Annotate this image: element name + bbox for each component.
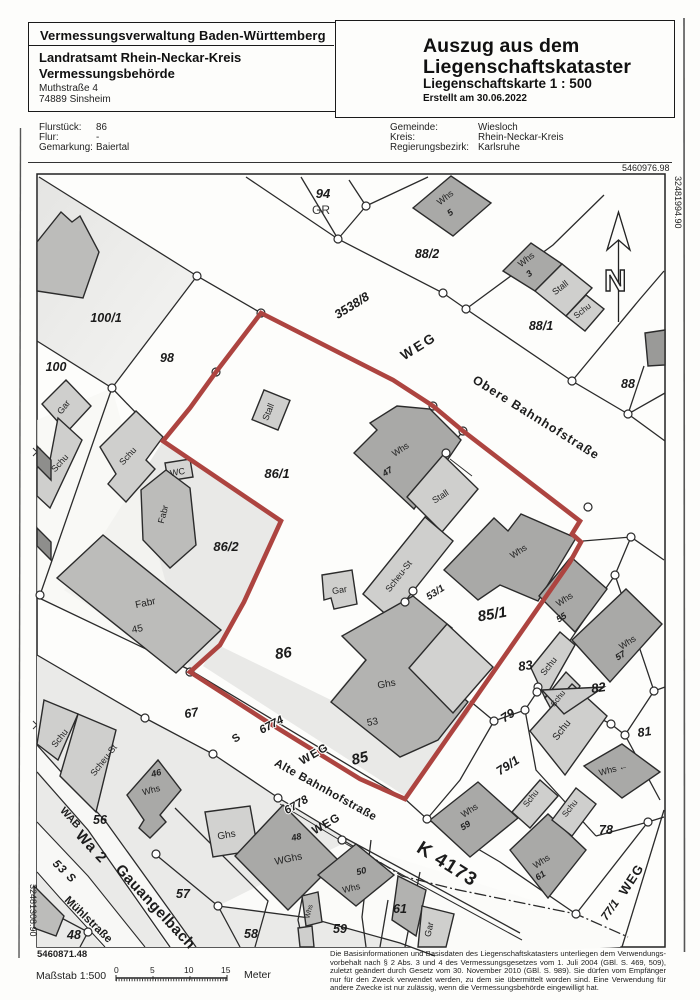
- svg-text:10: 10: [184, 965, 194, 975]
- svg-text:32481994.90: 32481994.90: [673, 176, 683, 229]
- svg-text:59: 59: [333, 922, 347, 936]
- svg-text:S: S: [230, 731, 243, 745]
- svg-text:82: 82: [590, 679, 607, 696]
- svg-text:61: 61: [393, 902, 407, 916]
- svg-text:3538/8: 3538/8: [332, 290, 372, 322]
- svg-text:100/1: 100/1: [90, 311, 121, 325]
- svg-text:32481308.90: 32481308.90: [28, 884, 38, 937]
- svg-text:57: 57: [176, 887, 191, 901]
- svg-text:0: 0: [114, 965, 119, 975]
- svg-text:88/2: 88/2: [415, 247, 439, 261]
- svg-text:86/1: 86/1: [264, 466, 289, 481]
- svg-text:56: 56: [93, 813, 108, 827]
- svg-text:86/2: 86/2: [213, 539, 239, 554]
- svg-text:53/1: 53/1: [424, 583, 447, 603]
- svg-text:77/1: 77/1: [599, 898, 622, 923]
- svg-text:98: 98: [160, 351, 174, 365]
- svg-text:GR: GR: [312, 203, 330, 217]
- svg-text:78: 78: [599, 823, 613, 837]
- svg-text:79/1: 79/1: [494, 753, 522, 778]
- svg-text:79: 79: [498, 706, 517, 725]
- svg-text:5: 5: [150, 965, 155, 975]
- svg-text:67: 67: [183, 705, 200, 721]
- svg-text:85/1: 85/1: [476, 604, 508, 626]
- svg-text:86: 86: [274, 644, 294, 663]
- svg-text:81: 81: [637, 724, 653, 740]
- svg-text:88: 88: [621, 377, 635, 391]
- svg-text:N: N: [604, 263, 626, 298]
- svg-text:88/1: 88/1: [529, 319, 553, 333]
- svg-text:WEG: WEG: [398, 329, 440, 363]
- svg-text:100: 100: [46, 360, 67, 374]
- svg-text:15: 15: [221, 965, 231, 975]
- svg-text:48: 48: [66, 928, 81, 942]
- svg-text:94: 94: [316, 186, 331, 201]
- svg-text:58: 58: [244, 927, 258, 941]
- svg-text:83: 83: [517, 657, 534, 674]
